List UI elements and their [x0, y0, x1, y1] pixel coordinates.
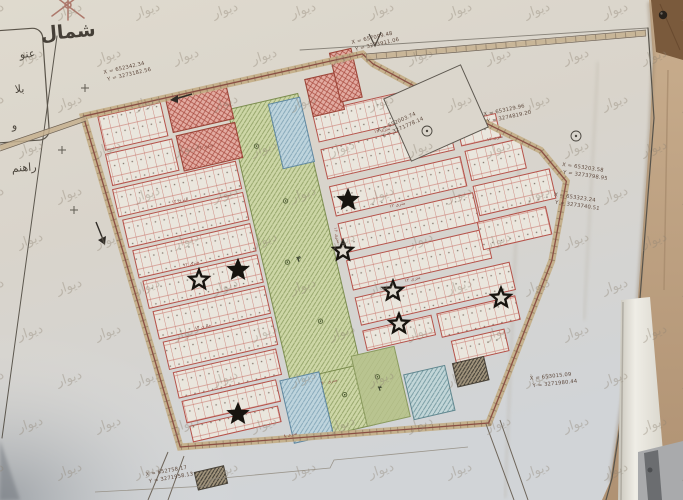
legend-item-label: راهنم — [11, 160, 37, 175]
legend-item-label: و — [10, 119, 17, 132]
tree-icon — [285, 260, 290, 265]
tree-icon — [283, 198, 288, 203]
bracket-bolt — [648, 468, 653, 473]
push-pin-highlight — [660, 12, 662, 14]
site-plan-svg: عنوبلاوراهنم شمال ۲۴ متری۱۲ متری۱۲ متری۱… — [0, 0, 683, 500]
push-pin — [659, 11, 667, 19]
survey-circle-dot-2 — [575, 135, 577, 137]
legend-item-label: بلا — [14, 82, 25, 96]
tree-icon — [318, 319, 323, 324]
survey-circle-dot — [426, 130, 428, 132]
tree-icon — [342, 392, 347, 397]
site-plan-photo: عنوبلاوراهنم شمال ۲۴ متری۱۲ متری۱۲ متری۱… — [0, 0, 683, 500]
